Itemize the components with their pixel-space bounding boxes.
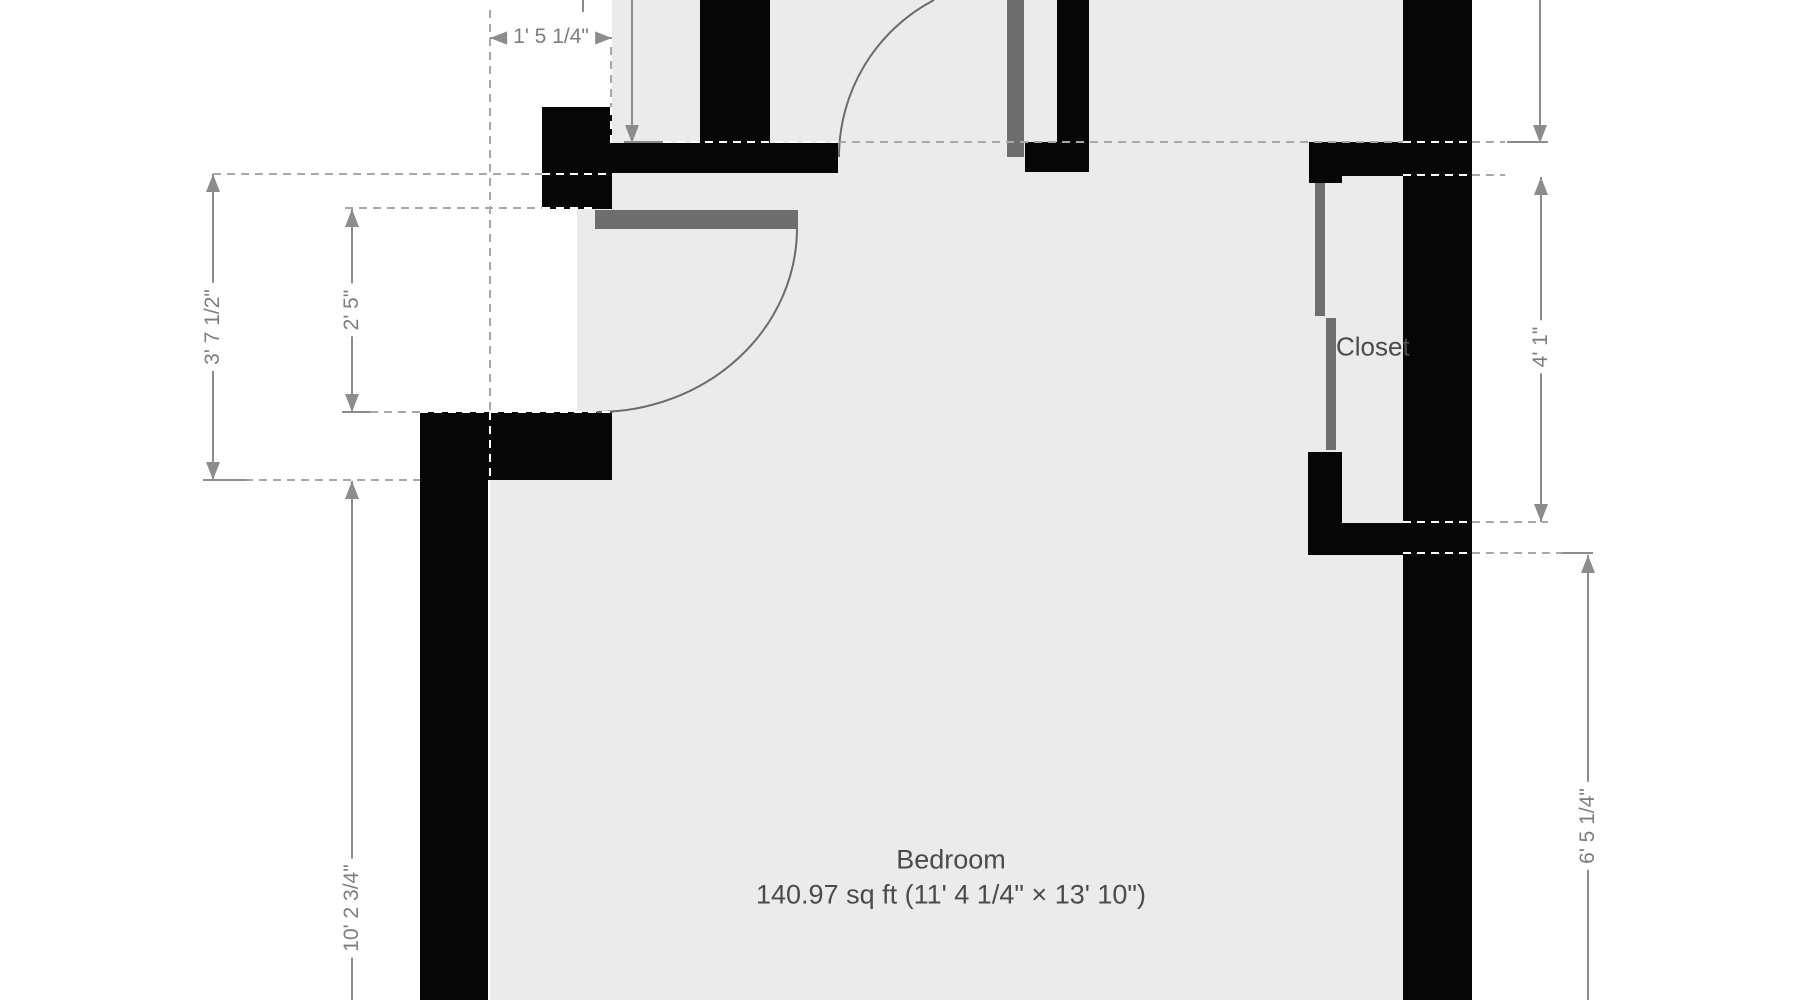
- dim-tick: [1562, 552, 1593, 554]
- dim-label-top-offset: 1' 5 1/4": [507, 24, 595, 50]
- dim-arrow-up-icon: [1534, 177, 1548, 195]
- wall-top-door-jamb: [1057, 0, 1089, 142]
- dim-arrow-down-icon: [1534, 504, 1548, 522]
- closet-sliding-panel-upper: [1315, 183, 1325, 316]
- wall-left-horizontal: [420, 412, 612, 480]
- wall-top-horizontal: [612, 143, 838, 173]
- dim-label-left-outer: 3' 7 1/2": [200, 283, 226, 371]
- bedroom-area-label: 140.97 sq ft (11' 4 1/4" × 13' 10"): [756, 880, 1146, 911]
- wall-left-vertical: [420, 480, 488, 1000]
- extension-line: [1472, 141, 1505, 143]
- wall-closet-top: [1342, 142, 1403, 176]
- extension-line: [420, 411, 612, 413]
- extension-line: [1403, 521, 1472, 523]
- dim-arrow-up-icon: [345, 481, 359, 499]
- dim-label-right-lower: 6' 5 1/4": [1575, 782, 1601, 870]
- extension-line: [1472, 552, 1562, 554]
- outside-area: [490, 209, 577, 412]
- extension-line: [489, 10, 491, 412]
- dim-tick: [203, 479, 247, 481]
- floor-plan: 1' 5 1/4" 3' 7 1/2" 2' 5" 10' 2 3/4" 4' …: [0, 0, 1800, 1000]
- wall-top-door-jamb-foot: [1025, 142, 1089, 172]
- dim-label-closet-height: 4' 1": [1528, 321, 1554, 374]
- dim-line-right-lower: [1587, 555, 1589, 1000]
- dim-arrow-up-icon: [206, 174, 220, 192]
- wall-corner-pier: [542, 107, 612, 209]
- dim-tick: [624, 141, 663, 143]
- bedroom-label: Bedroom: [896, 845, 1006, 876]
- extension-line: [345, 207, 542, 209]
- dim-arrow-right-icon: [594, 31, 612, 45]
- dim-line-top-door: [631, 0, 633, 128]
- closet-sliding-panel-lower: [1326, 318, 1336, 450]
- wall-top-left-vertical: [700, 0, 770, 143]
- dim-tick: [1507, 141, 1548, 143]
- wall-closet-bottom: [1342, 523, 1403, 555]
- dim-label-left-opening: 2' 5": [339, 284, 365, 337]
- extension-line: [1472, 174, 1505, 176]
- dim-line-cropped-top: [582, 0, 584, 12]
- dim-label-left-lower: 10' 2 3/4": [339, 858, 365, 957]
- wall-right: [1403, 0, 1472, 1000]
- wall-closet-top: [1309, 142, 1342, 183]
- extension-line: [1403, 174, 1472, 176]
- outside-area: [1472, 0, 1800, 1000]
- extension-line: [610, 47, 612, 107]
- dim-arrow-up-icon: [1581, 555, 1595, 573]
- left-door-leaf: [595, 210, 798, 229]
- wall-closet-bottom-stub: [1308, 452, 1342, 555]
- dim-arrow-down-icon: [345, 394, 359, 412]
- extension-line: [610, 107, 612, 143]
- extension-line: [663, 141, 838, 143]
- extension-line: [542, 207, 595, 209]
- extension-line: [838, 141, 1403, 143]
- top-door-leaf: [1007, 0, 1024, 157]
- dim-arrow-up-icon: [345, 209, 359, 227]
- dim-arrow-down-icon: [206, 462, 220, 480]
- extension-line: [1403, 141, 1472, 143]
- dim-line-top-right: [1539, 0, 1541, 128]
- closet-label: Closet: [1336, 332, 1410, 363]
- dim-tick: [342, 411, 370, 413]
- extension-line: [489, 412, 491, 480]
- extension-line: [1403, 552, 1472, 554]
- dim-arrow-left-icon: [490, 31, 508, 45]
- extension-line: [542, 173, 612, 175]
- extension-line: [213, 173, 542, 175]
